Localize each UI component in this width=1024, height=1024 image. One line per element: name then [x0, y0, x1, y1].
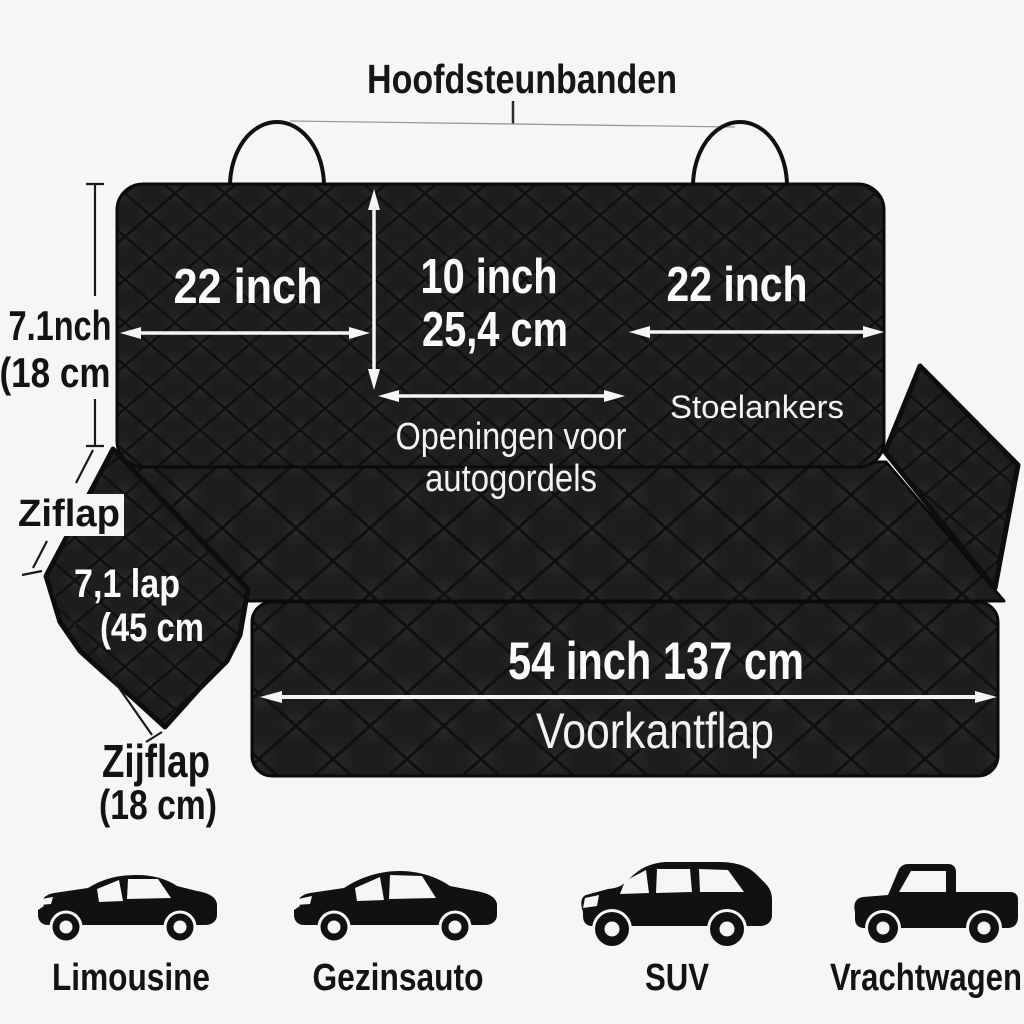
svg-text:Vrachtwagen: Vrachtwagen	[830, 957, 1022, 999]
svg-text:Gezinsauto: Gezinsauto	[313, 957, 484, 999]
svg-text:54 inch 137 cm: 54 inch 137 cm	[508, 632, 804, 691]
svg-text:SUV: SUV	[645, 957, 710, 999]
svg-text:22 inch: 22 inch	[667, 258, 808, 312]
svg-text:autogordels: autogordels	[425, 458, 597, 500]
svg-text:(18 cm: (18 cm	[0, 349, 111, 396]
svg-text:Limousine: Limousine	[52, 957, 210, 999]
svg-text:Openingen voor: Openingen voor	[396, 416, 627, 458]
svg-text:Ziflap: Ziflap	[18, 493, 120, 535]
svg-text:(18 cm): (18 cm)	[99, 781, 217, 828]
svg-text:Stoelankers: Stoelankers	[670, 389, 844, 425]
svg-text:Voorkantflap: Voorkantflap	[536, 703, 774, 759]
svg-text:7.1nch: 7.1nch	[9, 302, 112, 349]
svg-text:7,1 lap: 7,1 lap	[74, 562, 180, 606]
svg-text:Hoofdsteunbanden: Hoofdsteunbanden	[367, 56, 677, 102]
svg-text:25,4 cm: 25,4 cm	[422, 303, 568, 357]
svg-text:(45 cm: (45 cm	[100, 606, 204, 650]
svg-text:10 inch: 10 inch	[421, 250, 558, 304]
svg-text:22 inch: 22 inch	[174, 260, 323, 314]
svg-text:Zijflap: Zijflap	[102, 735, 210, 787]
